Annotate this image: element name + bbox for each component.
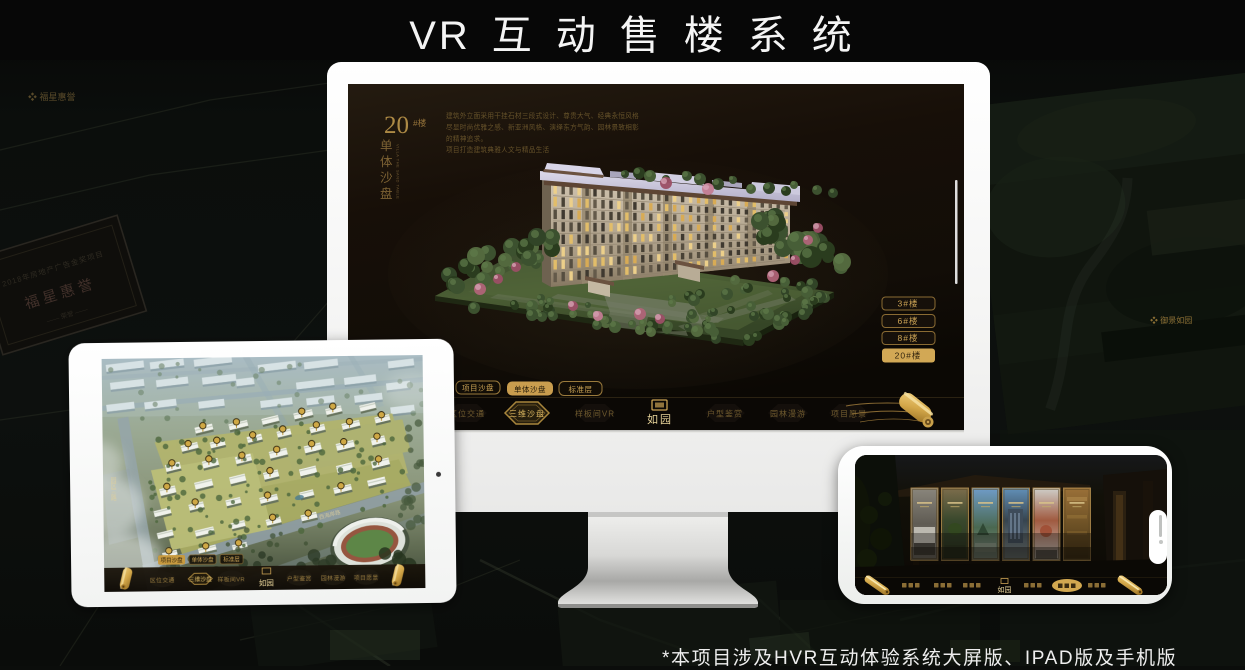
svg-text:标准层: 标准层 — [223, 555, 240, 563]
svg-text:如园: 如园 — [998, 585, 1012, 594]
svg-text:如园: 如园 — [259, 577, 274, 587]
svg-text:VILLA THE SAND TABLE: VILLA THE SAND TABLE — [396, 144, 401, 199]
svg-text:园林漫游: 园林漫游 — [770, 409, 806, 419]
svg-text:项目打造建筑典雅人文与精品生活: 项目打造建筑典雅人文与精品生活 — [446, 145, 550, 154]
svg-text:#楼: #楼 — [413, 118, 427, 128]
svg-text:项目愿景: 项目愿景 — [354, 575, 379, 582]
svg-text:盘: 盘 — [380, 186, 393, 201]
svg-text:项目沙盘: 项目沙盘 — [161, 556, 184, 564]
svg-text:体: 体 — [380, 155, 393, 169]
svg-text:的精神追求。: 的精神追求。 — [446, 134, 487, 143]
svg-text:3#楼: 3#楼 — [898, 299, 919, 309]
svg-text:单: 单 — [380, 139, 393, 153]
svg-text:项目沙盘: 项目沙盘 — [462, 383, 494, 393]
svg-text:20: 20 — [384, 112, 409, 139]
svg-text:三维沙盘: 三维沙盘 — [509, 409, 545, 419]
svg-text:区位交通: 区位交通 — [449, 409, 485, 419]
svg-text:标准层: 标准层 — [569, 384, 593, 394]
svg-text:样板间VR: 样板间VR — [575, 409, 615, 419]
svg-text:沙: 沙 — [380, 171, 393, 185]
svg-text:❖ 御景如园: ❖ 御景如园 — [1150, 315, 1192, 325]
svg-text:6#楼: 6#楼 — [898, 316, 919, 326]
svg-text:建筑外立面采用干挂石材三段式设计、尊贵大气、经典永恒风格: 建筑外立面采用干挂石材三段式设计、尊贵大气、经典永恒风格 — [446, 111, 639, 120]
svg-text:三维沙盘: 三维沙盘 — [189, 575, 212, 583]
svg-text:❖ 福星惠誉: ❖ 福星惠誉 — [28, 91, 76, 102]
svg-text:尽显时尚优雅之感、新亚洲风格、演绎东方气韵、园林景致相彰: 尽显时尚优雅之感、新亚洲风格、演绎东方气韵、园林景致相彰 — [446, 123, 639, 132]
svg-text:如园: 如园 — [647, 412, 673, 426]
svg-text:8#楼: 8#楼 — [898, 333, 919, 343]
svg-text:单体沙盘: 单体沙盘 — [191, 556, 214, 564]
svg-text:项目愿景: 项目愿景 — [831, 410, 867, 419]
svg-text:单体沙盘: 单体沙盘 — [514, 384, 546, 394]
svg-text:20#楼: 20#楼 — [895, 351, 922, 361]
svg-text:户型鉴赏: 户型鉴赏 — [707, 409, 743, 419]
